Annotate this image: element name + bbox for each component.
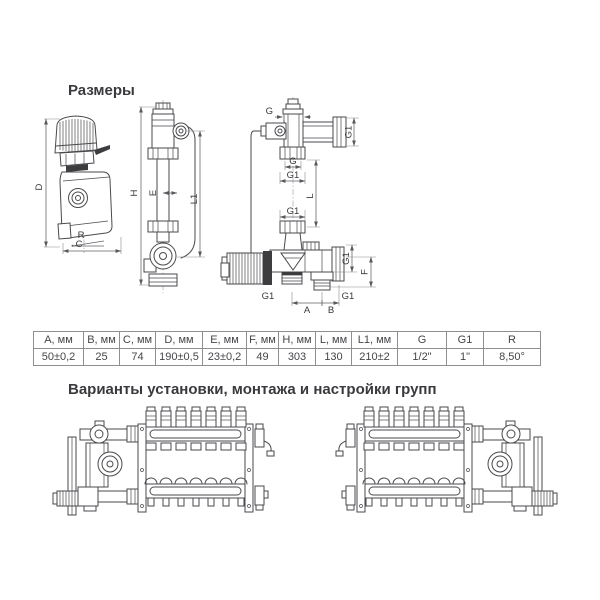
manifold-right-drawing <box>336 407 557 515</box>
table-header-cell: G <box>398 332 447 349</box>
table-header-cell: D, мм <box>156 332 203 349</box>
dim-label-b: B <box>328 305 334 316</box>
dim-label-f: F <box>360 269 371 275</box>
table-header-cell: H, мм <box>279 332 316 349</box>
table-header-row: A, мм B, мм C, мм D, мм E, мм F, мм H, м… <box>34 332 541 349</box>
table-header-cell: A, мм <box>34 332 84 349</box>
table-header-cell: L, мм <box>316 332 352 349</box>
table-header-cell: G1 <box>447 332 484 349</box>
table-value-cell: 1/2" <box>398 349 447 366</box>
dim-label-c: C <box>76 239 83 250</box>
dim-label-g1-lower-top: G1 <box>287 206 300 217</box>
dim-label-g1-bottom-left: G1 <box>262 291 275 302</box>
table-header-cell: B, мм <box>84 332 120 349</box>
table-value-cell: 74 <box>120 349 156 366</box>
dim-label-g1-lower-right: G1 <box>341 252 352 265</box>
drawing-valve-with-sensor: G G1 G G1 L G1 <box>221 97 376 316</box>
table-value-cell: 190±0,5 <box>156 349 203 366</box>
page: Размеры Варианты установки, монтажа и на… <box>0 0 600 600</box>
table-value-cell: 130 <box>316 349 352 366</box>
dim-label-g-top: G <box>266 106 273 117</box>
table-value-row: 50±0,2 25 74 190±0,5 23±0,2 49 303 130 2… <box>34 349 541 366</box>
dim-label-g1-mid: G1 <box>287 170 300 181</box>
dim-label-l: L <box>305 193 316 198</box>
drawing-pump-valve-side-view: D R C <box>34 116 121 254</box>
table-value-cell: 8,50° <box>484 349 541 366</box>
table-value-cell: 50±0,2 <box>34 349 84 366</box>
dim-label-a: A <box>304 305 311 316</box>
dimensions-table: A, мм B, мм C, мм D, мм E, мм F, мм H, м… <box>33 331 541 366</box>
dim-label-l1: L1 <box>189 194 200 205</box>
technical-drawings: D R C <box>0 0 600 600</box>
table-header-cell: C, мм <box>120 332 156 349</box>
dim-label-g1-top-right: G1 <box>344 126 355 139</box>
dim-label-d: D <box>34 183 45 190</box>
dim-label-g1-bottom-right: G1 <box>342 291 355 302</box>
dim-label-h: H <box>129 189 140 196</box>
table-header-cell: L1, мм <box>352 332 398 349</box>
drawing-assembly-front-view: H E L1 <box>129 100 205 293</box>
table-value-cell: 303 <box>279 349 316 366</box>
table-header-cell: E, мм <box>203 332 247 349</box>
table-value-cell: 23±0,2 <box>203 349 247 366</box>
table-value-cell: 210±2 <box>352 349 398 366</box>
manifold-left-drawing <box>53 407 274 515</box>
table-header-cell: F, мм <box>247 332 279 349</box>
table-header-cell: R <box>484 332 541 349</box>
table-value-cell: 49 <box>247 349 279 366</box>
dim-label-e: E <box>148 190 159 196</box>
table-value-cell: 25 <box>84 349 120 366</box>
table-value-cell: 1" <box>447 349 484 366</box>
dim-label-g-mid: G <box>289 156 296 167</box>
